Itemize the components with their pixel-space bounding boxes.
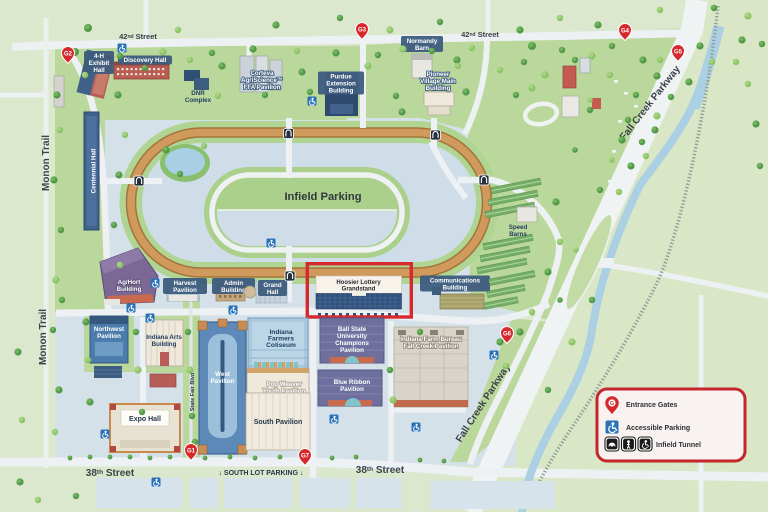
svg-text:Exhibit: Exhibit <box>89 60 110 67</box>
svg-text:Building: Building <box>426 85 451 92</box>
svg-text:Building: Building <box>152 341 177 348</box>
svg-text:Pop Weaver: Pop Weaver <box>266 381 302 388</box>
svg-text:G4: G4 <box>621 28 630 34</box>
svg-text:Pavilion: Pavilion <box>173 287 197 294</box>
svg-text:Admin: Admin <box>224 280 243 287</box>
svg-text:Centennial Hall: Centennial Hall <box>91 148 98 193</box>
svg-text:Grand: Grand <box>263 282 281 289</box>
svg-text:Monon Trail: Monon Trail <box>41 135 52 191</box>
svg-text:Discovery Hall: Discovery Hall <box>124 57 167 64</box>
svg-text:Building: Building <box>117 286 142 293</box>
svg-text:Grandstand: Grandstand <box>342 287 376 293</box>
svg-text:Accessible Parking: Accessible Parking <box>626 425 690 432</box>
svg-text:G3: G3 <box>358 27 367 33</box>
svg-text:G6: G6 <box>503 331 512 337</box>
svg-text:Indiana Arts: Indiana Arts <box>146 334 182 341</box>
svg-text:Building: Building <box>443 285 468 292</box>
svg-text:Monon Trail: Monon Trail <box>38 309 49 365</box>
svg-text:Extension: Extension <box>326 81 356 88</box>
svg-text:Expo Hall: Expo Hall <box>129 416 161 423</box>
svg-text:Pavilion: Pavilion <box>340 386 364 393</box>
svg-text:Harvest: Harvest <box>174 280 197 287</box>
svg-text:42nd Street: 42nd Street <box>461 30 499 39</box>
svg-text:Northwest: Northwest <box>94 326 124 333</box>
svg-text:Champions: Champions <box>335 340 369 347</box>
svg-text:West: West <box>215 371 230 378</box>
svg-text:Purdue: Purdue <box>330 74 352 81</box>
svg-text:Normandy: Normandy <box>407 38 438 45</box>
svg-text:Blue Ribbon: Blue Ribbon <box>334 379 371 386</box>
svg-text:G7: G7 <box>301 453 310 459</box>
svg-text:↓ SOUTH LOT PARKING ↓: ↓ SOUTH LOT PARKING ↓ <box>218 470 303 477</box>
svg-text:Building: Building <box>329 88 354 95</box>
svg-text:Entrance Gates: Entrance Gates <box>626 402 677 409</box>
svg-text:42nd Street: 42nd Street <box>119 32 157 41</box>
svg-text:Infield Tunnel: Infield Tunnel <box>656 442 701 449</box>
svg-text:Pavilion: Pavilion <box>211 378 235 385</box>
svg-text:Hall: Hall <box>93 67 105 74</box>
svg-text:DNR: DNR <box>191 90 205 97</box>
svg-text:Barn: Barn <box>415 45 429 52</box>
svg-text:Building: Building <box>221 287 246 294</box>
svg-text:G1: G1 <box>187 448 196 454</box>
svg-text:Village Main: Village Main <box>420 78 456 85</box>
svg-text:State Fair Blvd: State Fair Blvd <box>190 373 196 412</box>
svg-text:Corteva: Corteva <box>250 70 274 77</box>
svg-text:Pavilion: Pavilion <box>97 333 121 340</box>
svg-text:4-H: 4-H <box>94 53 105 60</box>
svg-text:38th Street: 38th Street <box>356 465 405 476</box>
svg-text:Hoosier Lottery: Hoosier Lottery <box>336 280 381 286</box>
svg-text:Ag/Hort: Ag/Hort <box>118 279 141 286</box>
svg-text:Pavilion: Pavilion <box>340 347 364 354</box>
svg-text:University: University <box>337 333 367 340</box>
svg-text:Communications: Communications <box>430 278 481 285</box>
svg-text:Coliseum: Coliseum <box>266 342 296 349</box>
svg-text:Indiana Farm Bureau: Indiana Farm Bureau <box>400 336 462 343</box>
svg-text:Hall: Hall <box>267 289 279 296</box>
svg-text:Ball State: Ball State <box>338 326 367 333</box>
svg-text:FFA Pavilion: FFA Pavilion <box>244 84 281 91</box>
svg-text:Infield Parking: Infield Parking <box>284 191 361 203</box>
svg-text:G5: G5 <box>674 49 683 55</box>
svg-text:Speed: Speed <box>509 224 528 231</box>
svg-text:Pioneer: Pioneer <box>427 71 450 78</box>
svg-text:Barns: Barns <box>509 231 527 238</box>
svg-text:38th Street: 38th Street <box>86 468 135 479</box>
svg-text:Complex: Complex <box>185 97 212 104</box>
svg-text:South Pavilion: South Pavilion <box>254 419 303 426</box>
svg-text:G: G <box>610 401 614 407</box>
svg-text:AgriScience™: AgriScience™ <box>241 77 283 84</box>
svg-text:Fall Creek Pavilion: Fall Creek Pavilion <box>403 343 458 350</box>
svg-text:G2: G2 <box>64 51 73 57</box>
